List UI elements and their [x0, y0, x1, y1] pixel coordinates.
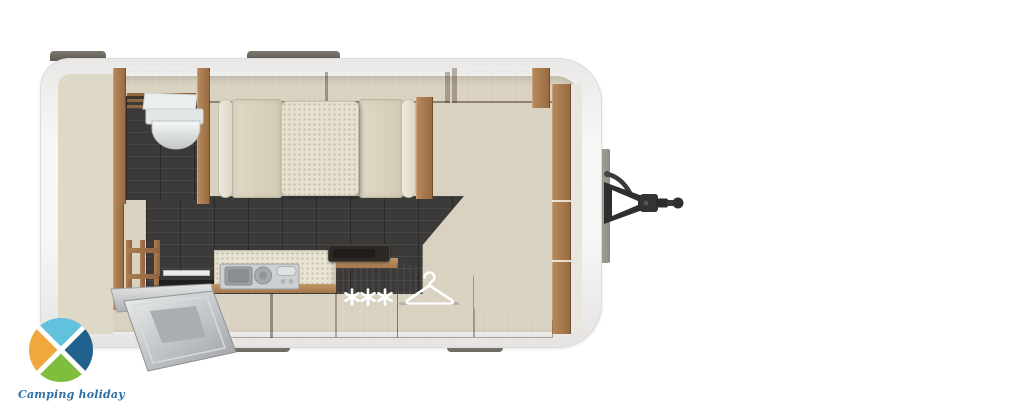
brand-logo: Camping holiday	[18, 316, 104, 401]
caravan-floorplan: Camping holiday	[0, 0, 1024, 410]
dinette-table	[281, 101, 359, 196]
bathroom-floor-tiles	[126, 96, 208, 200]
rear-wall-panel	[58, 74, 113, 334]
front-shelf-unit	[552, 84, 571, 334]
logo-text: Camping holiday	[18, 388, 104, 401]
wardrobe-rail	[399, 302, 459, 305]
bathroom-cabinet-top	[113, 68, 210, 98]
fridge-cabinet	[336, 258, 398, 338]
logo-mark	[18, 316, 104, 386]
dinette-bench-left	[232, 99, 282, 198]
dinette-bolster-right	[401, 99, 416, 198]
bathroom-wall-left	[113, 68, 126, 204]
front-corner-post	[532, 68, 550, 108]
dinette-bolster-left	[218, 99, 233, 198]
door-frame-slats	[126, 240, 160, 310]
kitchen-lower-cabinet	[203, 284, 336, 338]
dinette-bench-right	[359, 99, 403, 198]
door-frame-post	[113, 204, 124, 310]
kitchen-hob	[328, 245, 390, 262]
dinette-side-panel	[416, 97, 433, 199]
kitchen-counter	[214, 250, 336, 288]
